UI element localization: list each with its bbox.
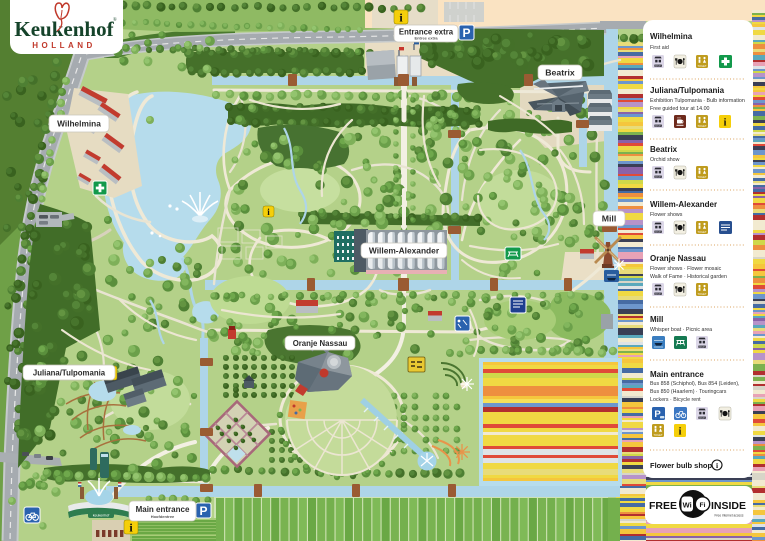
svg-text:P: P [654, 409, 661, 420]
svg-text:Main entrance: Main entrance [650, 370, 704, 379]
svg-text:Willem-Alexander: Willem-Alexander [369, 246, 440, 256]
svg-text:keukenhof: keukenhof [93, 514, 110, 518]
svg-text:Oranje Nassau: Oranje Nassau [650, 254, 706, 263]
svg-text:Flower shows · Flower mosaic: Flower shows · Flower mosaic [650, 266, 722, 272]
svg-text:i: i [679, 427, 682, 438]
svg-text:Free internet access: Free internet access [715, 514, 744, 518]
svg-text:HOLLAND: HOLLAND [32, 41, 96, 50]
svg-text:Lockers · Bicycle rent: Lockers · Bicycle rent [650, 397, 701, 403]
svg-text:i: i [716, 461, 718, 470]
svg-text:FREE: FREE [649, 500, 677, 512]
svg-text:TOILET: TOILET [697, 292, 706, 296]
svg-text:Whisper boat · Picnic area: Whisper boat · Picnic area [650, 327, 712, 333]
svg-text:SHOP: SHOP [699, 417, 706, 419]
svg-text:TOILET: TOILET [697, 124, 706, 128]
svg-text:Exhibition Tulpomania · Bulb i: Exhibition Tulpomania · Bulb information [650, 98, 745, 104]
svg-text:Walk of Fame · Historical gard: Walk of Fame · Historical garden [650, 274, 727, 280]
svg-text:Flower bulb shop: Flower bulb shop [650, 461, 712, 470]
svg-text:Wilhelmina: Wilhelmina [650, 32, 693, 41]
svg-text:TOILET: TOILET [697, 64, 706, 68]
svg-text:Willem-Alexander: Willem-Alexander [650, 200, 717, 209]
svg-text:Bus 858 (Schiphol), Bus 854 (L: Bus 858 (Schiphol), Bus 854 (Leiden), [650, 381, 740, 387]
svg-text:Wilhelmina: Wilhelmina [57, 118, 101, 128]
svg-text:Beatrix: Beatrix [650, 145, 678, 154]
svg-text:TOILET: TOILET [697, 230, 706, 234]
svg-text:Hoofdentree: Hoofdentree [151, 514, 175, 519]
svg-text:Fi: Fi [699, 502, 705, 509]
svg-text:Orchid show: Orchid show [650, 157, 680, 163]
svg-text:SHOP: SHOP [655, 231, 662, 233]
svg-text:Keukenhof: Keukenhof [14, 17, 114, 41]
svg-text:Juliana/Tulpomania: Juliana/Tulpomania [650, 86, 725, 95]
svg-text:TOILET: TOILET [697, 175, 706, 179]
svg-text:i: i [724, 118, 727, 129]
svg-text:TOILET: TOILET [653, 433, 662, 437]
svg-text:Beatrix: Beatrix [545, 68, 575, 78]
svg-text:INSIDE: INSIDE [711, 500, 746, 512]
svg-text:P: P [199, 504, 207, 518]
svg-text:SHOP: SHOP [699, 346, 706, 348]
svg-text:Free guided tour at 14.00: Free guided tour at 14.00 [650, 106, 710, 112]
svg-text:Oranje Nassau: Oranje Nassau [293, 339, 348, 348]
svg-text:Flower shows: Flower shows [650, 212, 683, 218]
svg-text:Mill: Mill [602, 214, 616, 224]
svg-text:P: P [462, 26, 470, 40]
svg-text:SHOP: SHOP [655, 176, 662, 178]
svg-text:Juliana/Tulpomania: Juliana/Tulpomania [33, 368, 106, 377]
svg-text:Bus 850 (Haarlem) · Touringcar: Bus 850 (Haarlem) · Touringcars [650, 389, 727, 395]
svg-text:Mill: Mill [650, 315, 663, 324]
svg-text:Wi: Wi [683, 501, 692, 510]
svg-text:Main entrance: Main entrance [136, 505, 190, 514]
svg-text:Entree extra: Entree extra [414, 35, 438, 40]
svg-text:First aid: First aid [650, 45, 669, 51]
svg-text:SHOP: SHOP [655, 125, 662, 127]
svg-text:SHOP: SHOP [655, 293, 662, 295]
svg-text:SHOP: SHOP [655, 65, 662, 67]
svg-text:®: ® [113, 17, 117, 23]
